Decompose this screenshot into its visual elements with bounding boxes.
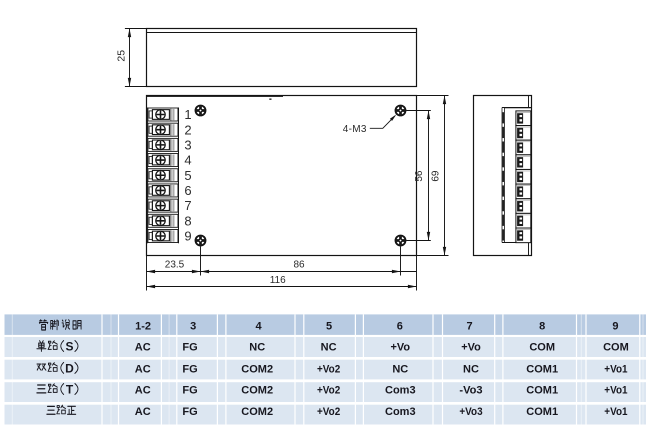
svg-text:+Vo1: +Vo1 [604, 363, 627, 375]
svg-text:FG: FG [182, 363, 197, 375]
svg-text:NC: NC [392, 363, 408, 375]
svg-text:+Vo1: +Vo1 [604, 384, 627, 396]
svg-text:COM2: COM2 [241, 363, 273, 375]
svg-text:6: 6 [397, 321, 403, 333]
svg-text:69: 69 [430, 170, 441, 182]
svg-text:COM1: COM1 [526, 384, 558, 396]
svg-text:116: 116 [270, 275, 286, 286]
svg-text:6: 6 [184, 183, 191, 198]
svg-text:4-M3: 4-M3 [343, 124, 367, 135]
svg-text:9: 9 [184, 229, 191, 244]
svg-text:D: D [65, 362, 74, 376]
svg-text:25: 25 [116, 50, 128, 62]
svg-text:NC: NC [463, 363, 479, 375]
svg-text:COM: COM [603, 342, 629, 354]
svg-text:7: 7 [184, 198, 191, 213]
svg-text:5: 5 [184, 168, 191, 183]
svg-text:Com3: Com3 [385, 406, 416, 418]
svg-text:+Vo2: +Vo2 [317, 406, 340, 418]
svg-text:NC: NC [249, 342, 265, 354]
svg-text:1: 1 [184, 107, 191, 122]
svg-text:S: S [65, 340, 73, 354]
svg-text:T: T [66, 383, 74, 397]
svg-text:2: 2 [184, 122, 191, 137]
svg-text:FG: FG [182, 342, 197, 354]
svg-text:COM1: COM1 [526, 406, 558, 418]
svg-text:8: 8 [539, 321, 545, 333]
svg-text:COM2: COM2 [241, 406, 273, 418]
svg-text:8: 8 [184, 213, 191, 228]
svg-text:3: 3 [190, 321, 196, 333]
svg-text:+Vo2: +Vo2 [317, 384, 340, 396]
svg-text:3: 3 [184, 137, 191, 152]
svg-text:Com3: Com3 [385, 384, 416, 396]
svg-text:AC: AC [135, 384, 151, 396]
svg-text:4: 4 [184, 153, 191, 168]
svg-text:AC: AC [135, 342, 151, 354]
svg-text:+Vo3: +Vo3 [459, 406, 482, 418]
svg-text:+Vo1: +Vo1 [604, 406, 627, 418]
svg-text:9: 9 [612, 321, 618, 333]
svg-text:FG: FG [182, 384, 197, 396]
svg-text:FG: FG [182, 406, 197, 418]
svg-text:86: 86 [293, 260, 305, 271]
svg-text:23.5: 23.5 [165, 260, 185, 271]
svg-text:AC: AC [135, 406, 151, 418]
svg-text:-Vo3: -Vo3 [459, 384, 482, 396]
svg-text:AC: AC [135, 363, 151, 375]
svg-text:1-2: 1-2 [135, 321, 151, 333]
svg-text:+Vo2: +Vo2 [317, 363, 340, 375]
svg-text:COM: COM [529, 342, 555, 354]
svg-text:5: 5 [326, 321, 332, 333]
svg-text:4: 4 [255, 321, 262, 333]
svg-text:COM1: COM1 [526, 363, 558, 375]
svg-text:+Vo: +Vo [461, 342, 481, 354]
svg-text:7: 7 [466, 321, 472, 333]
svg-text:56: 56 [414, 170, 425, 182]
svg-text:NC: NC [321, 342, 337, 354]
svg-text:COM2: COM2 [241, 384, 273, 396]
svg-text:+Vo: +Vo [391, 342, 411, 354]
